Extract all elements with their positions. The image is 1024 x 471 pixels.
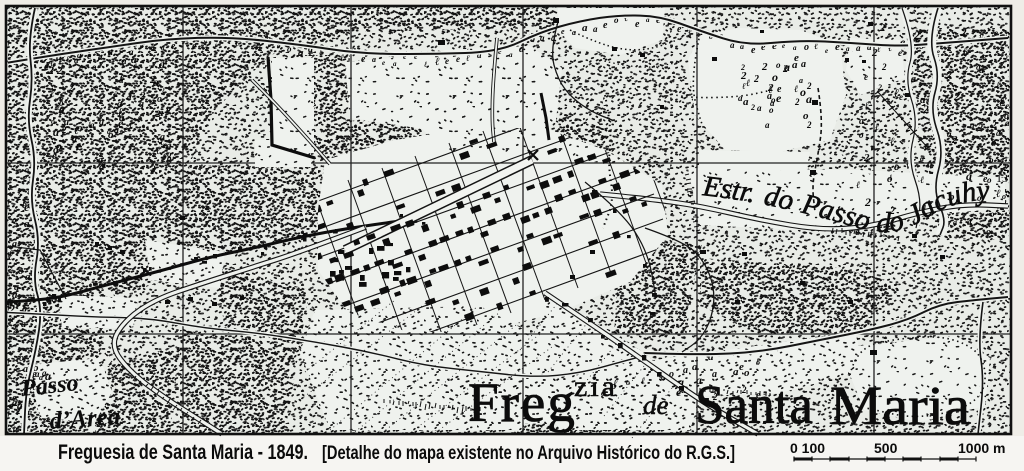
svg-text:ℓ: ℓ bbox=[996, 188, 1001, 200]
svg-text:a: a bbox=[947, 129, 952, 139]
svg-text:a: a bbox=[799, 76, 803, 85]
svg-text:ℓ: ℓ bbox=[794, 84, 798, 95]
svg-text:a: a bbox=[996, 128, 1001, 138]
svg-text:2: 2 bbox=[12, 398, 18, 409]
svg-text:a: a bbox=[859, 116, 864, 127]
svg-text:ℓ: ℓ bbox=[865, 100, 869, 110]
svg-text:a: a bbox=[743, 96, 749, 108]
svg-text:e: e bbox=[635, 19, 640, 30]
svg-text:2: 2 bbox=[147, 64, 152, 73]
svg-text:0 100: 0 100 bbox=[790, 440, 825, 456]
svg-text:o: o bbox=[804, 42, 809, 53]
svg-text:o: o bbox=[18, 265, 24, 277]
svg-text:ℓ: ℓ bbox=[424, 60, 428, 69]
svg-text:e: e bbox=[23, 173, 27, 183]
svg-text:ℓ: ℓ bbox=[999, 95, 1004, 109]
svg-text:ℓ: ℓ bbox=[856, 180, 860, 191]
svg-text:a: a bbox=[127, 92, 132, 102]
svg-text:a: a bbox=[582, 22, 588, 34]
svg-text:2: 2 bbox=[750, 103, 755, 112]
svg-text:a: a bbox=[792, 59, 798, 71]
svg-text:e: e bbox=[79, 62, 83, 72]
svg-text:e: e bbox=[10, 183, 14, 192]
svg-text:Santa: Santa bbox=[695, 374, 813, 435]
svg-text:a: a bbox=[99, 117, 104, 128]
svg-text:2: 2 bbox=[953, 91, 960, 103]
svg-text:2: 2 bbox=[881, 62, 887, 72]
svg-text:e: e bbox=[166, 104, 171, 116]
svg-text:e: e bbox=[899, 92, 903, 102]
svg-text:a: a bbox=[953, 218, 957, 227]
svg-text:a: a bbox=[13, 424, 18, 434]
svg-text:ℓ: ℓ bbox=[920, 175, 924, 186]
svg-text:o: o bbox=[772, 70, 778, 84]
svg-text:o: o bbox=[108, 129, 114, 141]
svg-text:2: 2 bbox=[960, 27, 967, 39]
svg-text:2: 2 bbox=[753, 74, 759, 85]
svg-text:2: 2 bbox=[68, 83, 74, 93]
svg-text:o: o bbox=[167, 153, 172, 163]
svg-text:2: 2 bbox=[61, 125, 67, 135]
svg-text:ℓ: ℓ bbox=[340, 53, 344, 64]
svg-text:o: o bbox=[157, 94, 162, 105]
svg-text:1000 m: 1000 m bbox=[958, 440, 1005, 456]
svg-text:e: e bbox=[138, 113, 142, 122]
svg-text:a: a bbox=[122, 56, 127, 66]
svg-text:a: a bbox=[114, 125, 119, 136]
svg-text:2: 2 bbox=[879, 22, 886, 34]
svg-text:2: 2 bbox=[740, 70, 747, 82]
svg-text:o: o bbox=[769, 105, 774, 115]
svg-text:2: 2 bbox=[991, 120, 997, 130]
svg-text:e: e bbox=[59, 104, 64, 116]
svg-text:ℓ: ℓ bbox=[162, 86, 166, 95]
svg-text:a: a bbox=[12, 289, 18, 301]
svg-text:a: a bbox=[801, 59, 806, 70]
svg-text:e: e bbox=[171, 41, 176, 52]
svg-text:2: 2 bbox=[922, 102, 929, 116]
svg-text:ℓ: ℓ bbox=[894, 86, 899, 100]
svg-text:a: a bbox=[101, 159, 106, 170]
svg-text:a: a bbox=[298, 47, 304, 59]
svg-text:a: a bbox=[393, 60, 397, 68]
svg-text:a: a bbox=[793, 44, 797, 52]
svg-text:a: a bbox=[962, 164, 968, 176]
svg-text:e: e bbox=[603, 20, 608, 31]
svg-text:o: o bbox=[986, 227, 991, 238]
svg-text:a: a bbox=[28, 408, 32, 417]
svg-text:a: a bbox=[509, 51, 513, 59]
svg-text:2: 2 bbox=[113, 90, 118, 99]
svg-text:o: o bbox=[1002, 192, 1006, 201]
svg-text:a: a bbox=[911, 74, 916, 85]
svg-text:e: e bbox=[1005, 101, 1009, 111]
svg-text:ℓ: ℓ bbox=[890, 136, 895, 148]
svg-text:de: de bbox=[643, 390, 669, 420]
svg-text:a: a bbox=[1005, 118, 1010, 128]
svg-text:o: o bbox=[22, 200, 27, 211]
svg-text:a: a bbox=[53, 125, 59, 139]
svg-text:ℓ: ℓ bbox=[641, 376, 645, 387]
svg-text:e: e bbox=[445, 56, 449, 66]
svg-text:e: e bbox=[898, 48, 902, 58]
svg-text:zia: zia bbox=[574, 370, 618, 403]
svg-text:e: e bbox=[776, 91, 782, 105]
svg-text:a: a bbox=[166, 140, 172, 152]
svg-text:[Detalhe do mapa existente no: [Detalhe do mapa existente no Arquivo Hi… bbox=[322, 443, 735, 464]
svg-text:a: a bbox=[160, 132, 165, 143]
svg-text:a: a bbox=[593, 24, 598, 34]
svg-text:a: a bbox=[683, 365, 688, 376]
svg-text:Freguesia de Santa Maria - 184: Freguesia de Santa Maria - 1849. bbox=[58, 441, 308, 464]
svg-text:ℓ: ℓ bbox=[756, 356, 760, 366]
svg-text:ℓ: ℓ bbox=[963, 46, 967, 57]
svg-text:a: a bbox=[806, 92, 812, 106]
svg-text:ℓ: ℓ bbox=[129, 120, 133, 131]
svg-text:2: 2 bbox=[951, 134, 958, 146]
svg-text:a: a bbox=[24, 218, 30, 230]
svg-text:d’Area: d’Area bbox=[49, 403, 122, 435]
svg-text:ℓ: ℓ bbox=[150, 42, 155, 54]
svg-text:a: a bbox=[158, 107, 164, 119]
svg-text:2: 2 bbox=[56, 65, 63, 77]
svg-text:o: o bbox=[803, 110, 809, 122]
svg-text:2: 2 bbox=[16, 192, 22, 202]
svg-text:a: a bbox=[920, 154, 924, 163]
svg-text:e: e bbox=[13, 327, 17, 337]
svg-text:Freg: Freg bbox=[468, 372, 577, 433]
svg-text:a: a bbox=[10, 247, 14, 256]
svg-text:2: 2 bbox=[963, 65, 968, 74]
svg-text:ℓ: ℓ bbox=[214, 42, 218, 51]
svg-text:2: 2 bbox=[150, 164, 156, 174]
svg-text:a: a bbox=[90, 120, 95, 130]
svg-text:a: a bbox=[979, 65, 984, 76]
svg-text:e: e bbox=[361, 54, 366, 65]
svg-text:a: a bbox=[45, 61, 49, 70]
svg-text:2: 2 bbox=[782, 64, 788, 75]
svg-text:2: 2 bbox=[946, 70, 952, 81]
svg-text:a: a bbox=[967, 217, 972, 227]
svg-text:e: e bbox=[120, 71, 125, 83]
svg-text:e: e bbox=[825, 47, 828, 55]
svg-text:a: a bbox=[119, 112, 125, 124]
svg-text:o: o bbox=[626, 378, 630, 387]
svg-text:ℓ: ℓ bbox=[989, 166, 993, 175]
svg-text:a: a bbox=[139, 99, 144, 110]
svg-text:e: e bbox=[981, 143, 987, 157]
svg-text:o: o bbox=[92, 62, 97, 72]
svg-text:e: e bbox=[94, 82, 98, 92]
svg-text:e: e bbox=[192, 41, 197, 52]
svg-text:2: 2 bbox=[761, 61, 768, 73]
svg-text:a: a bbox=[765, 120, 770, 130]
svg-text:a: a bbox=[757, 103, 762, 113]
svg-text:o: o bbox=[859, 130, 864, 140]
svg-text:o: o bbox=[19, 353, 24, 364]
svg-text:o: o bbox=[12, 215, 17, 225]
svg-text:13: 13 bbox=[996, 171, 1008, 185]
svg-text:o: o bbox=[163, 57, 167, 66]
svg-text:ℓ: ℓ bbox=[746, 78, 750, 89]
svg-text:ℓ: ℓ bbox=[1005, 54, 1009, 63]
svg-text:a: a bbox=[25, 271, 31, 283]
svg-text:ℓ: ℓ bbox=[944, 94, 948, 105]
svg-text:ℓ: ℓ bbox=[875, 122, 879, 133]
svg-text:a: a bbox=[17, 245, 21, 254]
svg-text:e: e bbox=[76, 139, 82, 153]
svg-text:Maria: Maria bbox=[830, 375, 970, 436]
svg-text:a: a bbox=[98, 52, 103, 62]
svg-text:o: o bbox=[991, 137, 997, 149]
svg-text:ℓ: ℓ bbox=[133, 62, 137, 73]
svg-text:2: 2 bbox=[806, 81, 812, 91]
svg-text:o: o bbox=[77, 122, 83, 134]
svg-text:ℓ: ℓ bbox=[996, 80, 1001, 92]
svg-text:o: o bbox=[56, 139, 62, 153]
svg-text:o: o bbox=[51, 117, 55, 126]
svg-text:ℓ: ℓ bbox=[435, 56, 440, 68]
svg-text:ℓ: ℓ bbox=[50, 86, 55, 100]
svg-text:a: a bbox=[372, 55, 376, 64]
svg-text:e: e bbox=[751, 45, 756, 56]
svg-text:o: o bbox=[990, 209, 995, 219]
svg-text:e: e bbox=[864, 72, 868, 82]
svg-text:o: o bbox=[887, 173, 893, 185]
svg-text:a: a bbox=[970, 120, 975, 130]
svg-text:o: o bbox=[776, 60, 781, 70]
svg-text:a: a bbox=[21, 319, 26, 330]
svg-text:a: a bbox=[846, 45, 850, 53]
svg-text:2: 2 bbox=[977, 123, 983, 134]
svg-text:e: e bbox=[982, 51, 987, 63]
svg-text:a: a bbox=[161, 44, 165, 52]
svg-text:ℓ: ℓ bbox=[742, 81, 746, 91]
svg-text:a: a bbox=[927, 158, 933, 170]
svg-text:e: e bbox=[382, 59, 385, 67]
svg-text:e: e bbox=[124, 124, 128, 134]
svg-text:500: 500 bbox=[874, 440, 898, 456]
svg-text:2: 2 bbox=[863, 152, 870, 164]
svg-text:a: a bbox=[129, 47, 134, 57]
